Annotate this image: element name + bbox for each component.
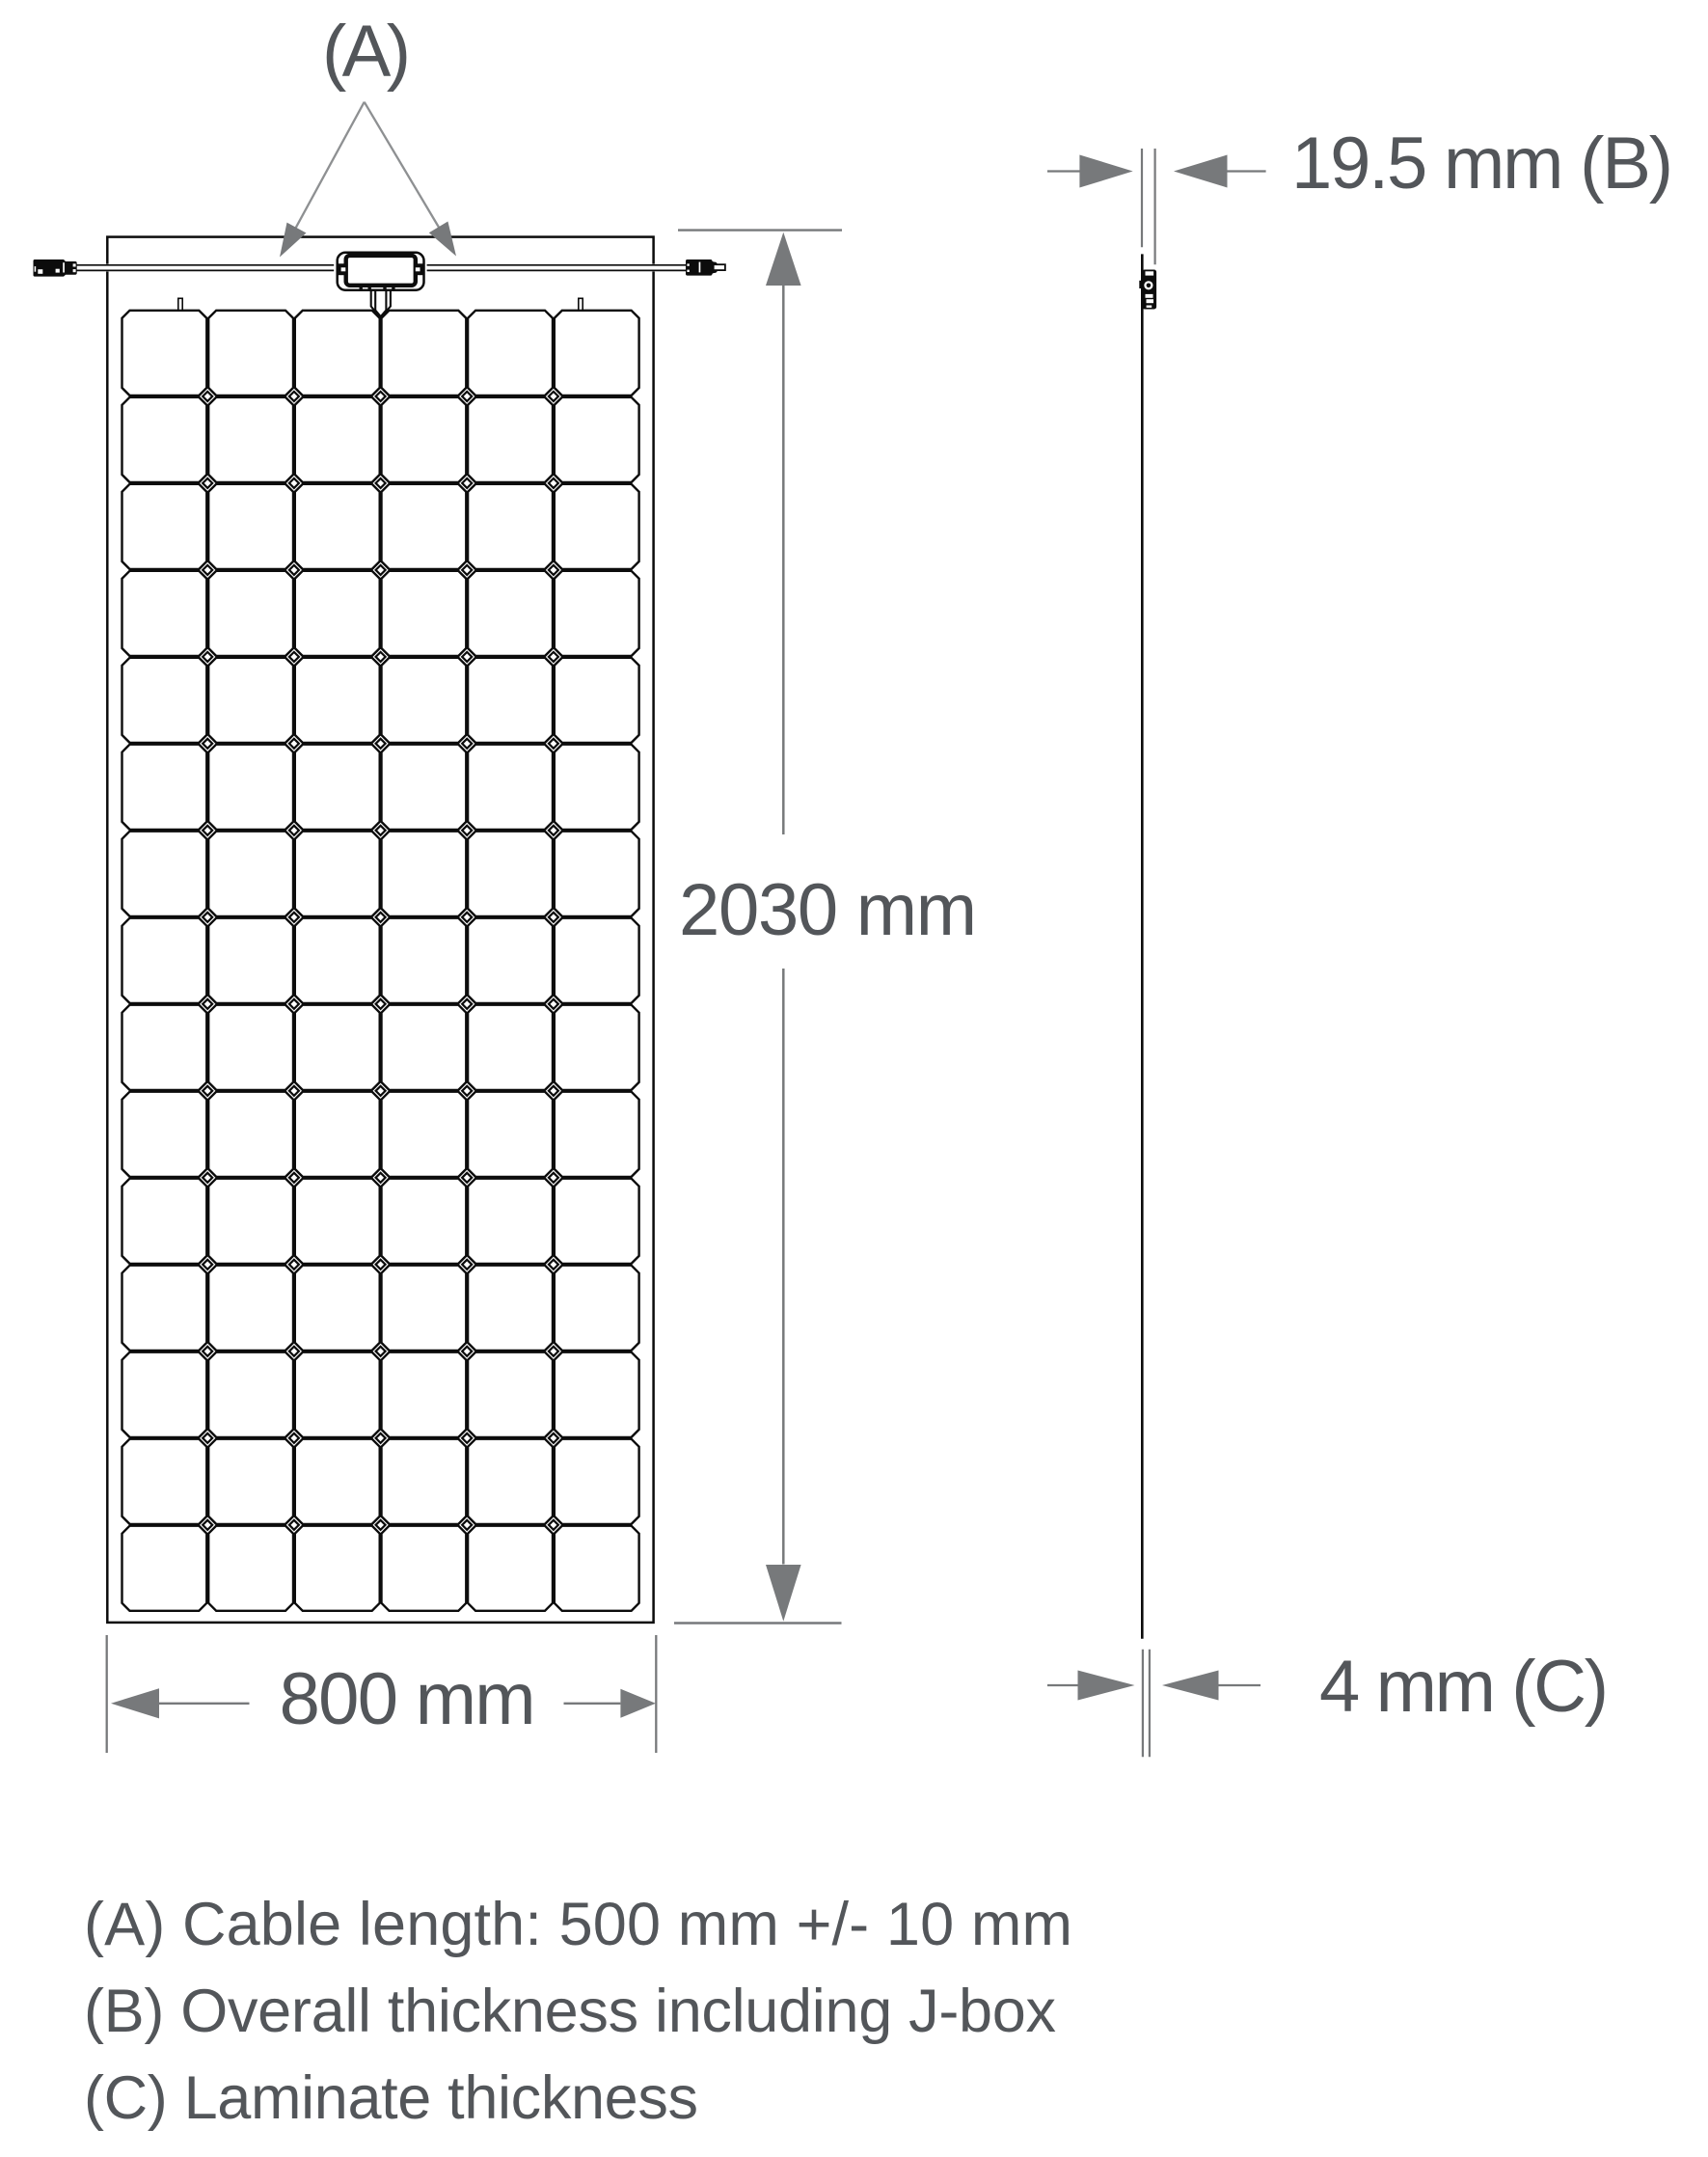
svg-text:4 mm (C): 4 mm (C) [1319, 1646, 1609, 1728]
svg-text:800 mm: 800 mm [280, 1658, 536, 1740]
svg-text:(C) Laminate thickness: (C) Laminate thickness [84, 2064, 698, 2132]
svg-text:(A) Cable length: 500 mm +/- 1: (A) Cable length: 500 mm +/- 10 mm [84, 1891, 1072, 1958]
svg-text:(B) Overall thickness includin: (B) Overall thickness including J-box [84, 1978, 1056, 2045]
svg-text:19.5 mm (B): 19.5 mm (B) [1291, 123, 1673, 205]
svg-text:(A): (A) [322, 11, 411, 93]
svg-text:2030 mm: 2030 mm [679, 869, 977, 951]
